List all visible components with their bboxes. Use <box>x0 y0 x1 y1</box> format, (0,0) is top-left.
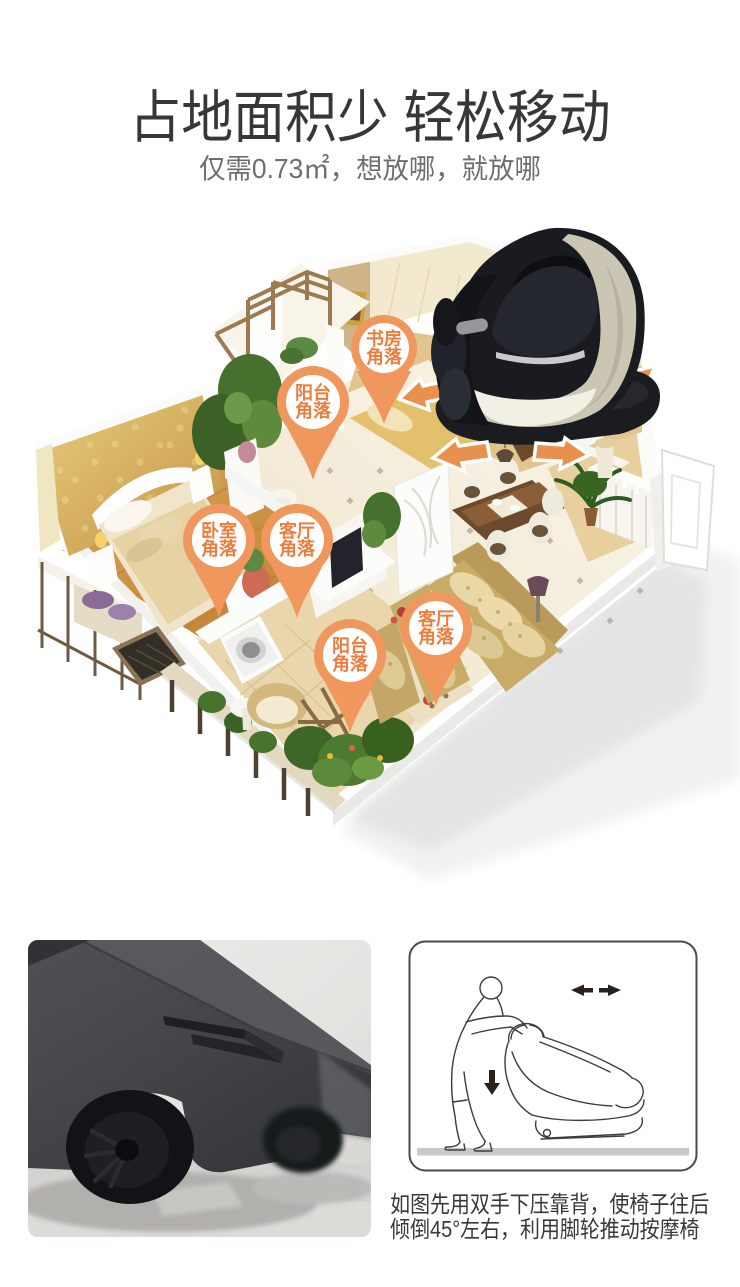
svg-text:角落: 角落 <box>332 653 369 674</box>
svg-text:阳台: 阳台 <box>295 382 331 403</box>
svg-text:客厅: 客厅 <box>418 608 454 629</box>
svg-text:角落: 角落 <box>201 538 238 559</box>
svg-text:客厅: 客厅 <box>279 520 315 541</box>
svg-text:书房: 书房 <box>366 328 402 349</box>
svg-text:角落: 角落 <box>295 400 332 421</box>
svg-text:角落: 角落 <box>418 626 455 647</box>
svg-text:角落: 角落 <box>366 346 403 367</box>
svg-text:卧室: 卧室 <box>201 520 237 541</box>
svg-text:阳台: 阳台 <box>332 635 368 656</box>
svg-text:角落: 角落 <box>279 538 316 559</box>
